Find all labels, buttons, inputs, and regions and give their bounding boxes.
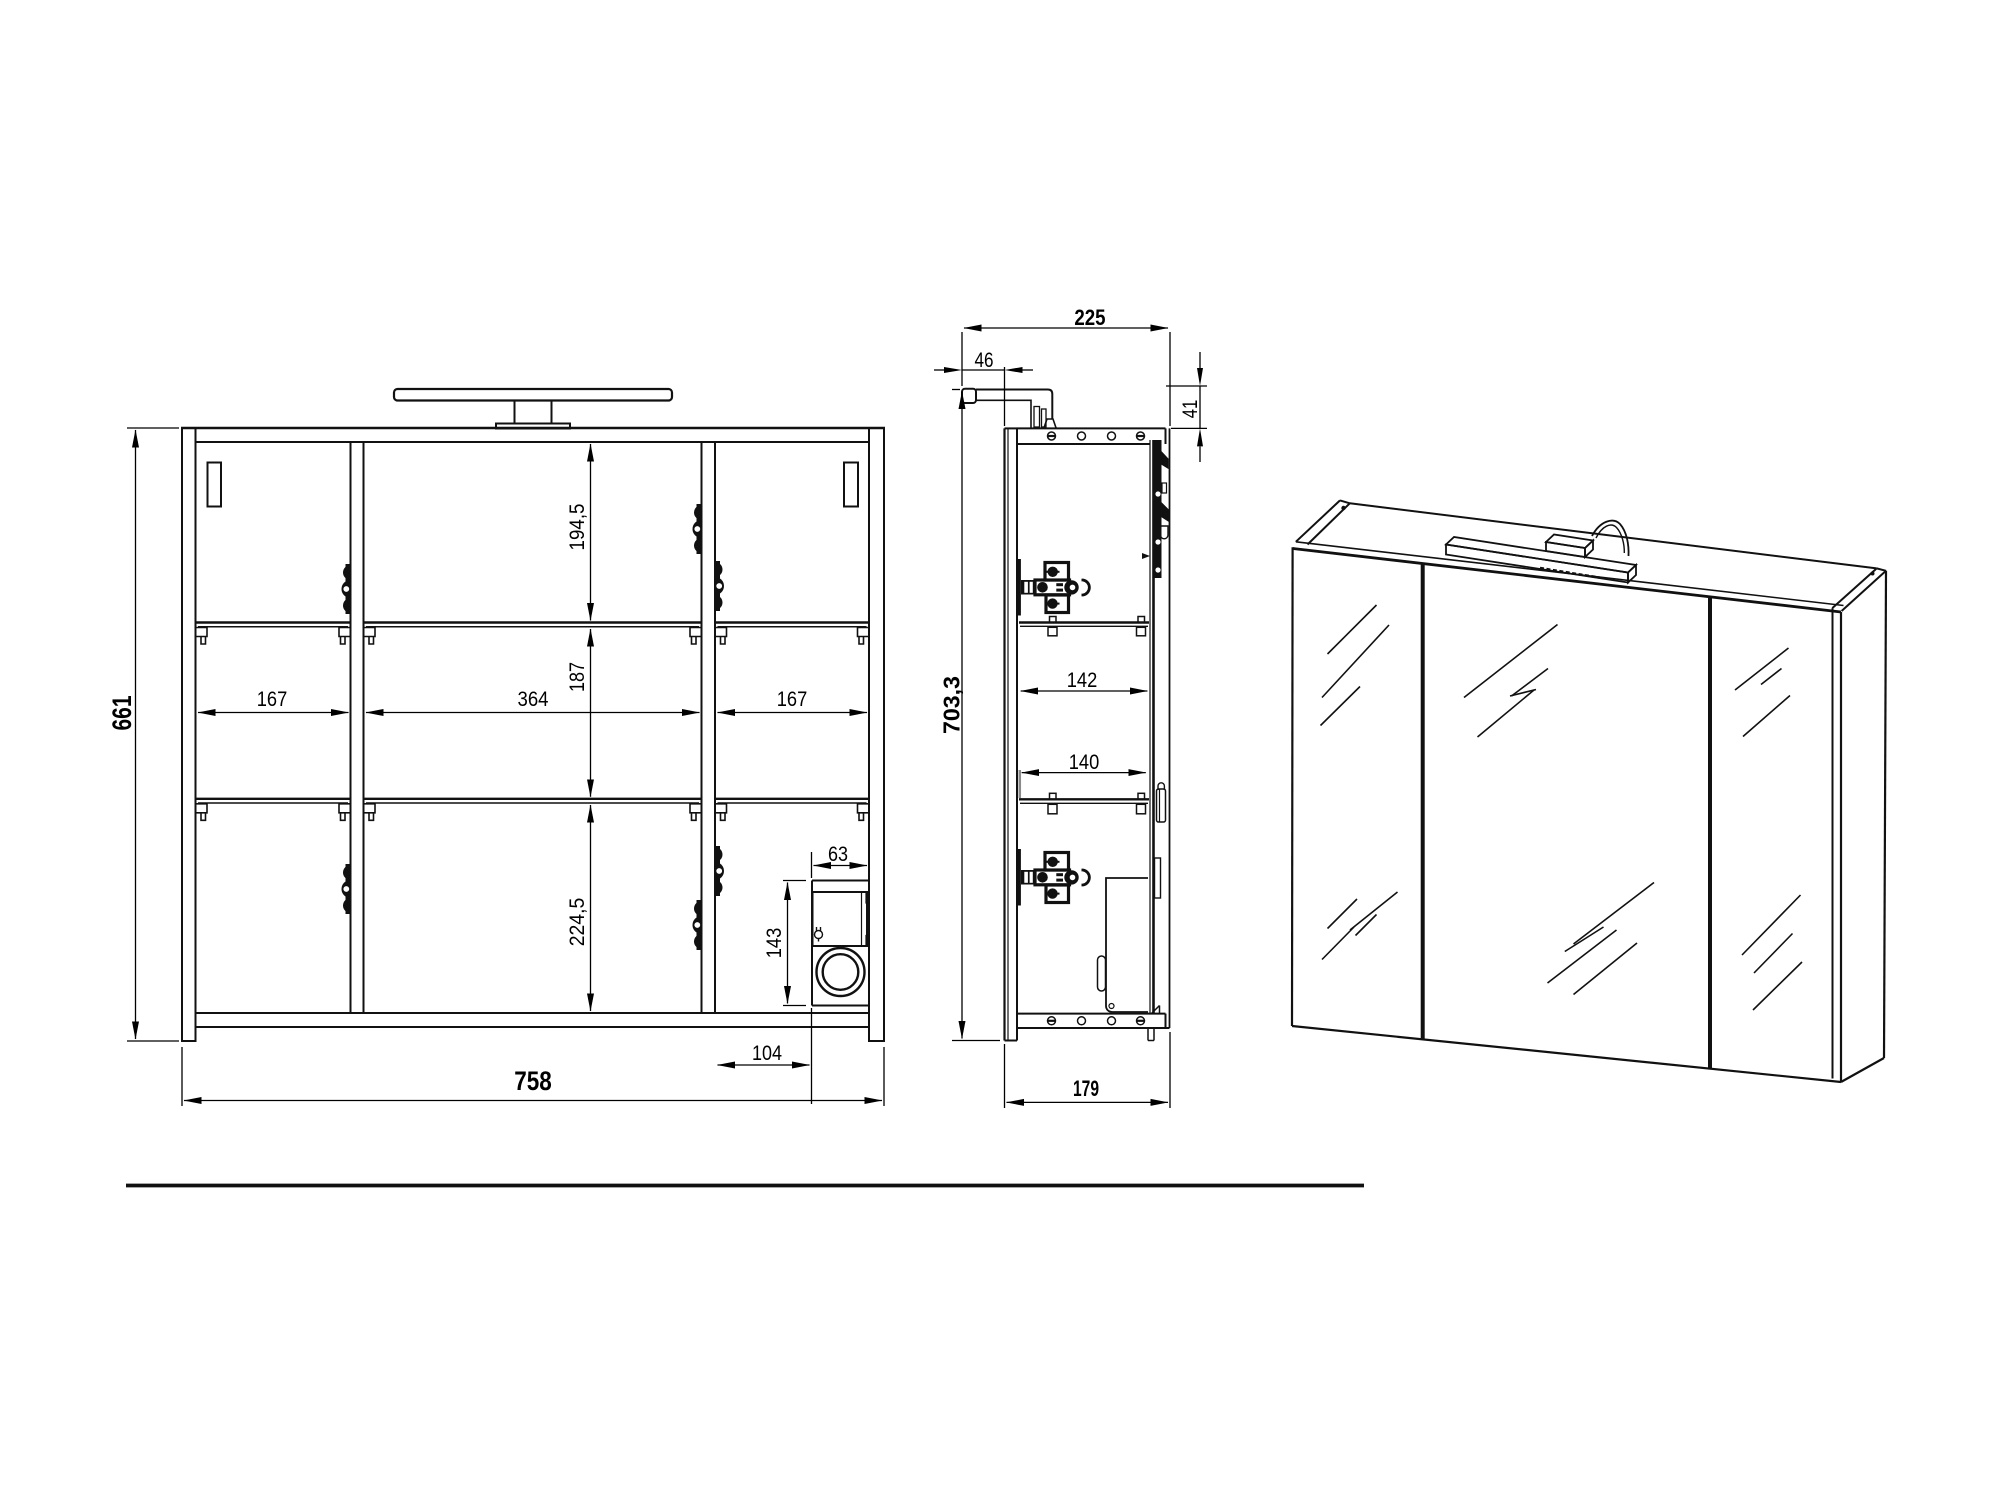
svg-text:179: 179 xyxy=(1073,1076,1099,1101)
svg-text:140: 140 xyxy=(1069,751,1100,774)
svg-text:167: 167 xyxy=(777,688,808,711)
svg-text:364: 364 xyxy=(518,688,549,711)
svg-text:224,5: 224,5 xyxy=(566,898,589,947)
svg-text:46: 46 xyxy=(975,349,994,372)
svg-text:187: 187 xyxy=(566,662,589,692)
svg-text:194,5: 194,5 xyxy=(566,504,589,551)
svg-text:143: 143 xyxy=(763,928,786,959)
svg-text:225: 225 xyxy=(1074,305,1105,330)
svg-text:63: 63 xyxy=(828,843,848,866)
svg-text:758: 758 xyxy=(514,1066,552,1096)
svg-text:167: 167 xyxy=(257,688,288,711)
svg-text:142: 142 xyxy=(1067,669,1098,692)
svg-text:104: 104 xyxy=(752,1042,782,1065)
svg-text:661: 661 xyxy=(107,696,137,731)
svg-text:41: 41 xyxy=(1179,400,1202,419)
svg-text:703,3: 703,3 xyxy=(939,676,965,734)
